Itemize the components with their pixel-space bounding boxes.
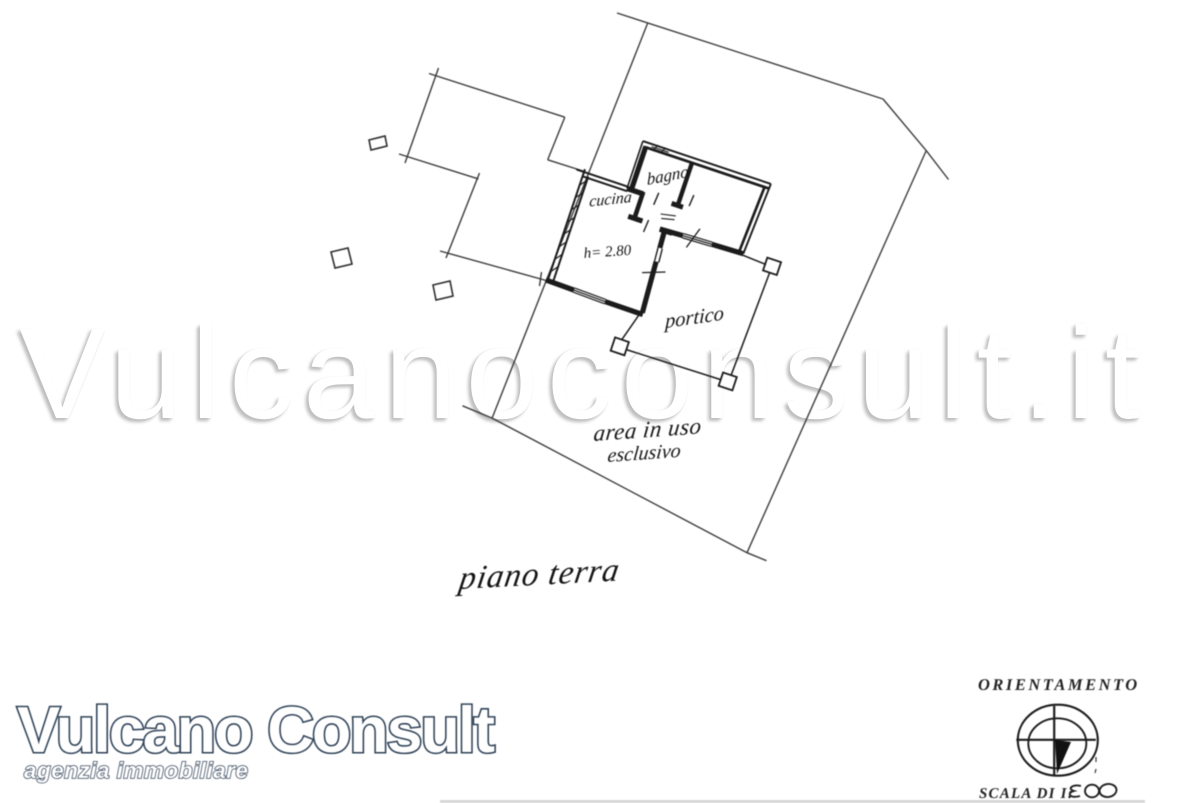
svg-text:esclusivo: esclusivo [606,440,681,467]
svg-text:Vulcano Consult: Vulcano Consult [17,693,495,766]
svg-text:ORIENTAMENTO: ORIENTAMENTO [978,675,1140,694]
svg-text:h= 2.80: h= 2.80 [583,243,632,262]
svg-text:portico: portico [663,303,724,334]
svg-text:agenzia immobiliare: agenzia immobiliare [24,758,249,783]
svg-text:SCALA DI I:: SCALA DI I: [979,786,1074,802]
svg-text:cucina: cucina [589,189,633,211]
svg-text:piano terra: piano terra [455,552,623,597]
